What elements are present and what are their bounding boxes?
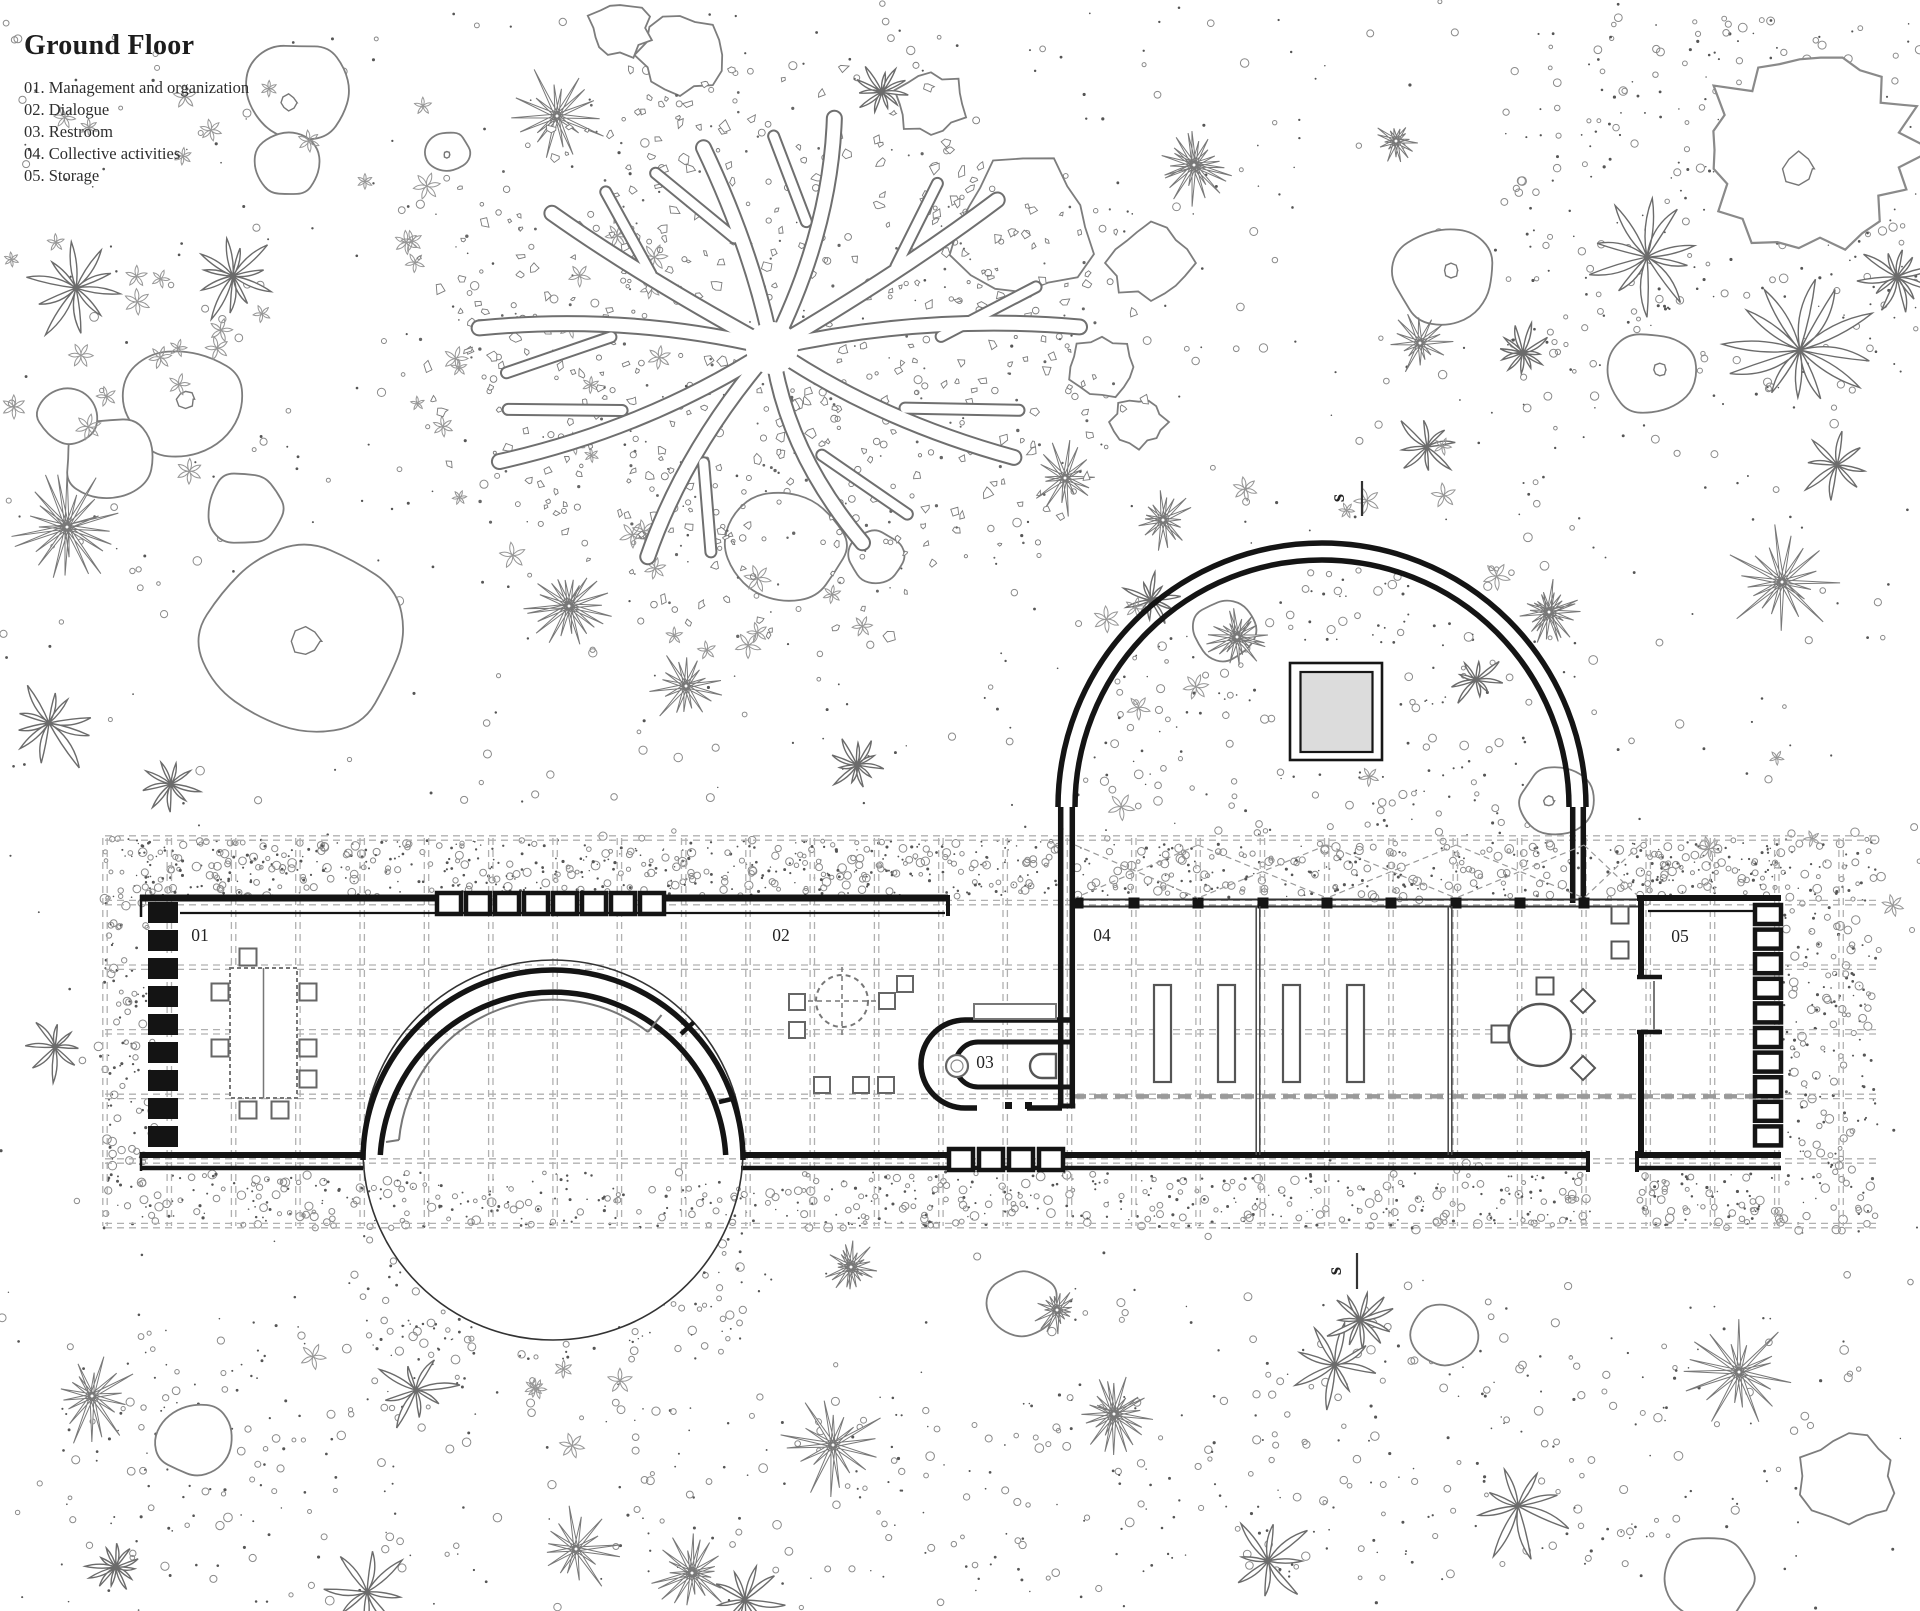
plant-spiky <box>511 69 603 157</box>
rock-outline <box>1392 229 1492 324</box>
section-marker-bottom: s <box>1322 1267 1346 1275</box>
plant-palm <box>85 1543 138 1589</box>
chair <box>300 1040 317 1057</box>
rock-outline <box>1800 1433 1894 1524</box>
plant-spiky <box>547 1506 621 1587</box>
chair <box>1537 978 1554 995</box>
plant-palm <box>1123 572 1180 624</box>
plant-flower <box>211 319 233 341</box>
plant-flower <box>434 416 453 436</box>
rock-outline <box>1069 337 1133 397</box>
tree-canopy-outline <box>1713 58 1920 250</box>
plant-flower <box>1431 483 1455 507</box>
plant-flower <box>1354 488 1378 513</box>
chair <box>1612 942 1629 959</box>
plant-flower <box>126 265 147 285</box>
chair <box>1612 907 1629 924</box>
plant-flower <box>569 266 590 286</box>
plant-palm <box>201 238 271 319</box>
plant-flower <box>5 252 19 267</box>
rock-outline <box>1410 1305 1478 1366</box>
plant-flower <box>1095 606 1119 633</box>
plant-flower <box>395 230 417 254</box>
plant-flower <box>698 641 716 659</box>
stool <box>853 1077 869 1093</box>
chair <box>272 1102 289 1119</box>
shelf-bench <box>974 1004 1056 1019</box>
plant-spiky <box>651 1533 721 1605</box>
rock-outline <box>198 545 403 732</box>
round-table <box>1509 1004 1571 1066</box>
plant-flower <box>648 346 670 369</box>
plant-spiky <box>1081 1377 1153 1455</box>
rock-outline <box>895 72 967 135</box>
plant-flower <box>500 542 525 567</box>
plant-flower <box>824 585 841 603</box>
stool <box>789 994 805 1010</box>
plant-flower <box>852 617 872 636</box>
plant-flower <box>47 234 64 250</box>
room-label-05: 05 <box>1671 926 1689 946</box>
plant-spiky <box>825 1241 877 1290</box>
chair <box>240 1102 257 1119</box>
rock-outline <box>1608 334 1697 412</box>
room-label-04: 04 <box>1093 925 1111 945</box>
plant-flower <box>69 344 94 366</box>
chair <box>212 984 229 1001</box>
plant-spiky <box>523 578 611 644</box>
plant-flower <box>358 174 371 190</box>
plant-flower <box>253 306 270 323</box>
plant-flower <box>1360 768 1378 786</box>
title-block: Ground Floor 01. Management and organiza… <box>24 30 249 187</box>
plant-flower <box>302 1345 327 1370</box>
plant-spiky <box>61 1357 133 1444</box>
plant-flower <box>3 395 24 419</box>
legend: 01. Management and organization 02. Dial… <box>24 77 249 187</box>
plant-palm <box>1806 431 1865 500</box>
bench <box>1154 985 1171 1082</box>
plant-spiky <box>1684 1319 1791 1422</box>
rock-outline <box>209 474 284 543</box>
rock-outline <box>1105 222 1196 301</box>
chair <box>300 984 317 1001</box>
plant-palm <box>832 739 884 787</box>
plant-palm <box>19 685 91 768</box>
room-label-01: 01 <box>191 925 209 945</box>
plant-flower <box>96 387 115 406</box>
rock-outline <box>986 1271 1056 1336</box>
plant-flower <box>1770 751 1784 765</box>
rock-outline <box>634 16 722 96</box>
rock-outline <box>1665 1538 1755 1611</box>
legend-item-03: 03. Restroom <box>24 121 249 143</box>
stool <box>814 1077 830 1093</box>
section-marker-top: s <box>1325 494 1349 502</box>
plant-palm <box>26 242 120 335</box>
chair-diamond <box>1571 989 1595 1013</box>
plant-flower <box>413 173 440 199</box>
chair <box>300 1071 317 1088</box>
sink <box>946 1055 968 1077</box>
bench <box>1347 985 1364 1082</box>
plant-flower <box>1339 503 1354 517</box>
plant-palm <box>143 762 201 812</box>
rock-outline <box>1109 401 1169 450</box>
stool <box>897 976 913 992</box>
plant-palm <box>1500 323 1547 374</box>
plant-spiky <box>649 656 722 717</box>
bench <box>1218 985 1235 1082</box>
plant-flower <box>405 254 424 272</box>
room-label-03: 03 <box>976 1052 994 1072</box>
vegetation-layer <box>3 67 1920 1611</box>
legend-item-01: 01. Management and organization <box>24 77 249 99</box>
stool <box>789 1022 805 1038</box>
legend-item-04: 04. Collective activities <box>24 143 249 165</box>
plant-palm <box>25 1022 78 1083</box>
plant-flower <box>585 448 598 462</box>
stool <box>878 1077 894 1093</box>
toilet <box>1030 1054 1056 1078</box>
plant-flower <box>1109 795 1135 820</box>
plant-flower <box>178 458 201 484</box>
plant-spiky <box>1378 127 1418 161</box>
plant-flower <box>411 396 424 409</box>
plant-palm <box>324 1551 402 1611</box>
plant-flower <box>556 1360 572 1378</box>
chair <box>1492 1026 1509 1043</box>
plant-palm <box>1857 250 1920 312</box>
legend-item-02: 02. Dialogue <box>24 99 249 121</box>
plant-palm <box>380 1360 460 1428</box>
floor-plan-sheet: 0102030405ss Ground Floor 01. Management… <box>0 0 1920 1611</box>
plant-spiky <box>1162 131 1232 207</box>
chair <box>212 1040 229 1057</box>
plant-spiky <box>1730 524 1840 630</box>
plant-palm <box>1478 1469 1568 1559</box>
plant-flower <box>452 491 466 504</box>
plant-palm <box>1589 198 1694 317</box>
plant-flower <box>608 1368 632 1391</box>
plant-flower <box>415 97 432 113</box>
plant-flower <box>1882 895 1903 916</box>
round-table <box>816 975 868 1027</box>
chair-diamond <box>1571 1056 1595 1080</box>
plant-palm <box>1238 1524 1307 1597</box>
courtyard-platform <box>1290 663 1382 760</box>
bench <box>1283 985 1300 1082</box>
plant-flower <box>1234 477 1257 501</box>
stool <box>879 993 895 1009</box>
plant-flower <box>125 289 149 315</box>
plant-spiky <box>781 1401 881 1497</box>
floor-plan-canvas: 0102030405ss <box>0 0 1920 1611</box>
plant-spiky <box>1139 490 1192 550</box>
rock-outline <box>155 1405 232 1476</box>
plant-flower <box>560 1433 585 1457</box>
plant-flower <box>153 270 170 288</box>
legend-item-05: 05. Storage <box>24 165 249 187</box>
plant-flower <box>1484 565 1510 590</box>
chair <box>240 949 257 966</box>
page-title: Ground Floor <box>24 30 249 62</box>
plant-flower <box>583 377 598 394</box>
plant-palm <box>1452 661 1503 703</box>
plant-spiky <box>1520 579 1581 642</box>
plant-flower <box>666 627 682 643</box>
room-label-02: 02 <box>772 925 790 945</box>
